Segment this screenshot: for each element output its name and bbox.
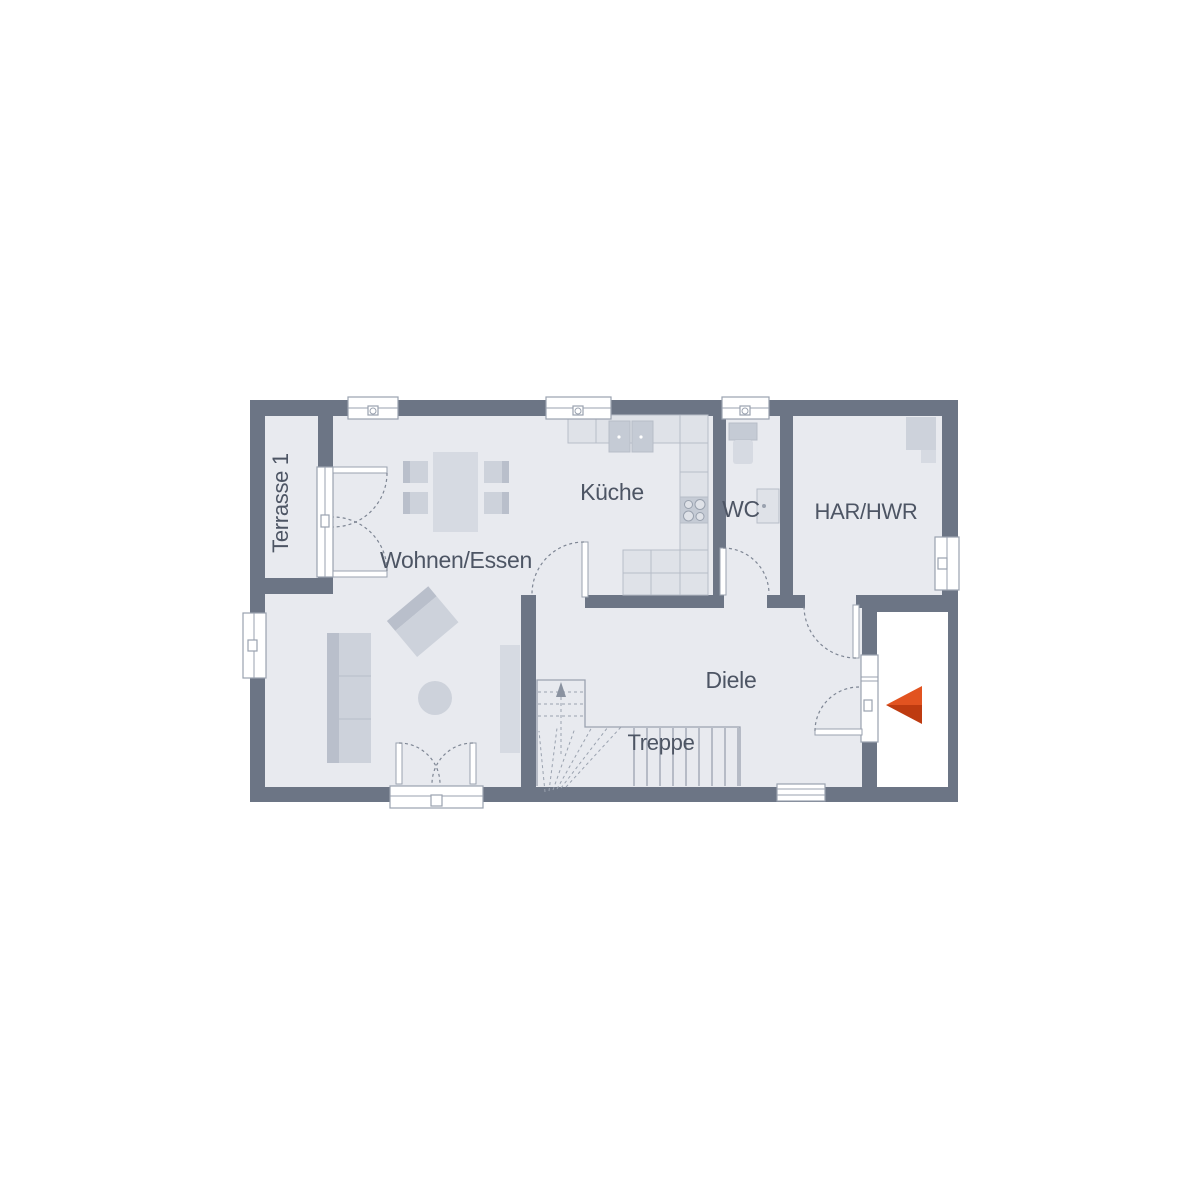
floor-plan-page: Terrasse 1 Wohnen/Essen Küche WC HAR/HWR…	[0, 0, 1200, 1200]
window-top-2	[546, 397, 611, 419]
utility-appliance-step	[921, 450, 936, 463]
floor-plan: Terrasse 1 Wohnen/Essen Küche WC HAR/HWR…	[0, 0, 1200, 1200]
sideboard	[500, 645, 520, 753]
toilet-tank	[729, 423, 757, 440]
label-har-hwr: HAR/HWR	[814, 499, 917, 524]
doorway-wc	[724, 595, 767, 608]
window-top-3	[722, 397, 769, 419]
doorway-kueche	[536, 595, 585, 608]
label-wohnen-essen: Wohnen/Essen	[380, 547, 532, 573]
label-kueche: Küche	[580, 479, 644, 505]
dining-chair	[484, 461, 509, 483]
dining-chair	[403, 461, 428, 483]
label-wc: WC	[722, 496, 760, 522]
window-top-1	[348, 397, 398, 419]
window-bottom	[777, 784, 825, 801]
utility-appliance	[906, 417, 936, 450]
dining-chair	[484, 492, 509, 514]
label-diele: Diele	[706, 667, 757, 693]
label-terrasse: Terrasse 1	[268, 453, 293, 553]
label-treppe: Treppe	[627, 730, 694, 755]
side-table	[418, 681, 452, 715]
dining-chair	[403, 492, 428, 514]
window-right	[935, 537, 959, 590]
window-left	[243, 613, 266, 678]
sofa	[327, 633, 371, 763]
toilet-icon	[733, 440, 753, 464]
dining-table	[433, 452, 478, 532]
cooktop	[680, 497, 708, 523]
washbasin-icon	[757, 489, 779, 523]
doorway-har	[805, 595, 856, 608]
